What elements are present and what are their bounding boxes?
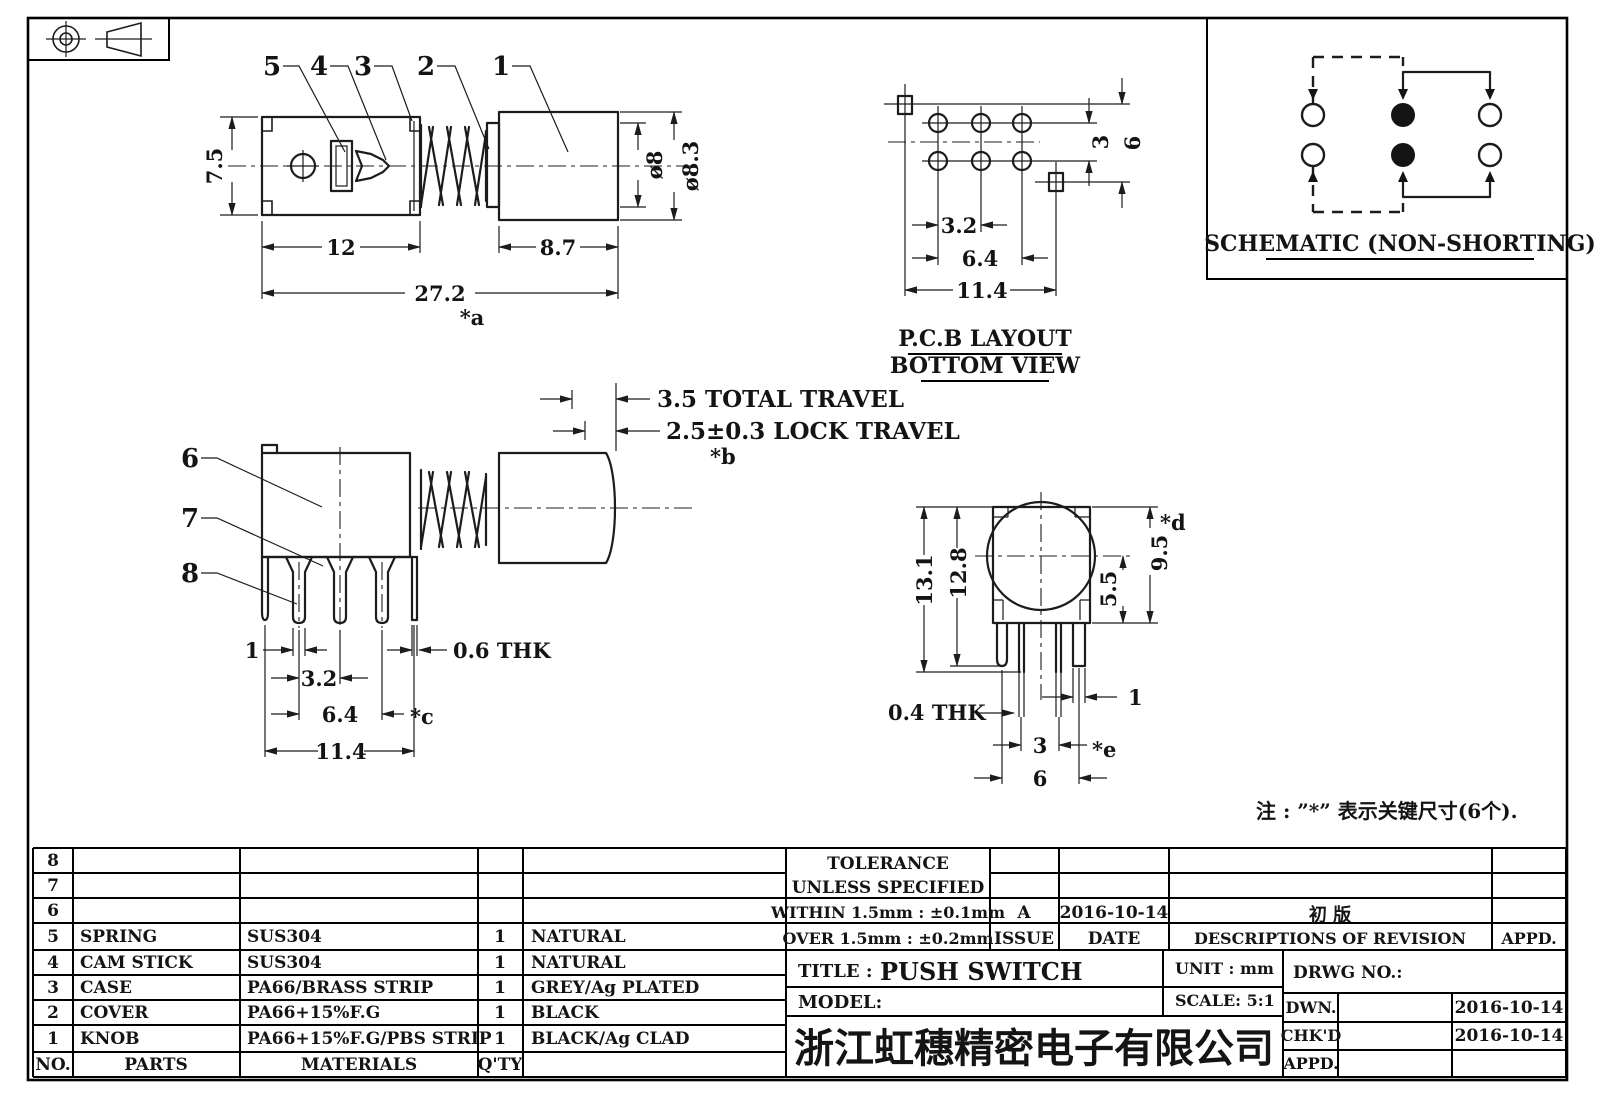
row-material: PA66+15%F.G/PBS STRIP: [247, 1029, 492, 1049]
row-color: GREY/Ag PLATED: [531, 978, 700, 998]
dim-pitch-3-2: 3.2: [941, 213, 978, 238]
row-no: 6: [47, 901, 59, 921]
dim-body-height-12-8: 12.8: [946, 547, 971, 598]
key-dim-a: *a: [460, 305, 485, 330]
revision-description: 初 版: [1309, 904, 1351, 926]
row-no: 2: [47, 1003, 59, 1023]
issue-value: A: [1016, 903, 1031, 923]
header-no: NO.: [35, 1055, 70, 1075]
row-material: PA66/BRASS STRIP: [247, 978, 433, 998]
dim-total-travel: 3.5 TOTAL TRAVEL: [657, 386, 904, 413]
dim-upper-height-9-5: 9.5: [1147, 535, 1172, 572]
row-qty: 1: [494, 1003, 506, 1023]
part-label-8: 8: [181, 559, 199, 589]
appd-column-label: APPD.: [1500, 929, 1556, 948]
row-no: 1: [47, 1029, 59, 1049]
row-part: SPRING: [80, 927, 157, 947]
projection-symbol: [28, 18, 169, 60]
revision-date: 2016-10-14: [1060, 903, 1169, 923]
tolerance-within: WITHIN 1.5mm : ±0.1mm: [770, 903, 1005, 922]
scale-label: SCALE: 5:1: [1175, 991, 1275, 1010]
company-name: 浙江虹穗精密电子有限公司: [794, 1025, 1274, 1072]
key-dim-b: *b: [710, 444, 736, 469]
row-no: 4: [47, 953, 59, 973]
row-color: BLACK/Ag CLAD: [531, 1029, 690, 1049]
part-label-6: 6: [181, 444, 199, 474]
date-label: DATE: [1088, 929, 1141, 949]
row-no: 3: [47, 978, 59, 998]
part-label-7: 7: [181, 504, 199, 534]
row-part: CAM STICK: [80, 953, 194, 973]
key-dimension-note: 注 : ”*” 表示关键尺寸(6个).: [1256, 799, 1518, 823]
row-no: 8: [47, 851, 59, 871]
dim-pitch-3-c: 3: [1033, 733, 1048, 758]
chkd-date: 2016-10-14: [1455, 1026, 1564, 1046]
dim-dia-8-3: ø8.3: [678, 141, 703, 192]
tolerance-subtitle: UNLESS SPECIFIED: [792, 878, 985, 898]
dim-knob-8-7: 8.7: [540, 235, 577, 260]
header-parts: PARTS: [124, 1055, 188, 1075]
key-dim-e: *e: [1092, 737, 1116, 762]
view-front: 13.1 12.8 9.5 *d 5.5 0.4 THK 1 3 *e 6: [888, 492, 1186, 791]
row-no: 7: [47, 876, 59, 896]
key-dim-d: *d: [1160, 510, 1186, 535]
row-qty: 1: [494, 953, 506, 973]
dim-row-gap-3: 3: [1088, 135, 1113, 150]
unit-label: UNIT : mm: [1175, 959, 1274, 978]
dim-span-6-c: 6: [1033, 766, 1048, 791]
drawing-sheet: 5 4 3 2 1 7.5 12 8.7 27.2: [0, 0, 1600, 1100]
pcb-caption-line2: BOTTOM VIEW: [890, 353, 1080, 379]
pcb-layout-view: 3 6 3.2 6.4 11.4 P.C.B LAYOUT BOTTOM VIE…: [884, 78, 1145, 381]
row-no: 5: [47, 927, 59, 947]
dim-pin-width-1: 1: [245, 638, 260, 663]
header-materials: MATERIALS: [301, 1055, 417, 1075]
tolerance-title: TOLERANCE: [827, 854, 949, 874]
dim-dia-8: ø8: [642, 151, 667, 180]
dwn-label: DWN.: [1285, 998, 1336, 1017]
dim-span-6-4-b: 6.4: [322, 702, 359, 727]
issue-label: ISSUE: [994, 929, 1054, 949]
tolerance-over: OVER 1.5mm : ±0.2mm: [783, 929, 994, 948]
dim-total-height-13-1: 13.1: [912, 554, 937, 605]
chkd-label: CHK'D: [1281, 1026, 1342, 1045]
row-part: CASE: [80, 978, 132, 998]
key-dim-c: *c: [410, 704, 434, 729]
dim-thickness-0-6: 0.6 THK: [453, 638, 551, 663]
appd-row-label: APPD.: [1282, 1054, 1338, 1073]
parts-table: 8 7 6 5 SPRING SUS304 1 NATURAL 4 CAM ST…: [35, 851, 699, 1075]
drwg-no-label: DRWG NO.:: [1293, 963, 1403, 983]
row-part: KNOB: [80, 1029, 140, 1049]
row-part: COVER: [80, 1003, 149, 1023]
dim-lower-height-5-5: 5.5: [1096, 571, 1121, 608]
part-label-5: 5: [263, 52, 281, 82]
dim-width-11-4-b: 11.4: [315, 739, 366, 764]
dim-thickness-0-4: 0.4 THK: [888, 700, 986, 725]
row-material: SUS304: [247, 953, 322, 973]
drawing-title: PUSH SWITCH: [880, 957, 1083, 986]
row-color: NATURAL: [531, 927, 626, 947]
pcb-caption-line1: P.C.B LAYOUT: [898, 326, 1072, 352]
revision-label: DESCRIPTIONS OF REVISION: [1194, 929, 1466, 948]
title-label: TITLE :: [798, 961, 873, 982]
row-material: PA66+15%F.G: [247, 1003, 380, 1023]
view-side-assembly: 5 4 3 2 1 7.5 12 8.7 27.2: [202, 52, 703, 330]
part-label-3: 3: [354, 52, 372, 82]
model-label: MODEL:: [798, 992, 882, 1013]
row-qty: 1: [494, 927, 506, 947]
row-material: SUS304: [247, 927, 322, 947]
dim-width-11-4: 11.4: [956, 278, 1007, 303]
dwn-date: 2016-10-14: [1455, 998, 1564, 1018]
part-label-1: 1: [492, 52, 510, 82]
part-label-4: 4: [310, 52, 328, 82]
dim-height-7-5: 7.5: [202, 148, 227, 185]
row-qty: 1: [494, 978, 506, 998]
dim-row-span-6: 6: [1120, 136, 1145, 151]
view-side-pins: 6 7 8 3.5 TOTAL TRAVEL 2.5±0.3 LOCK TRAV…: [181, 383, 960, 764]
dim-pitch-3-2-b: 3.2: [301, 666, 338, 691]
schematic-view: SCHEMATIC (NON-SHORTING): [1204, 18, 1596, 279]
part-label-2: 2: [417, 52, 435, 82]
row-color: NATURAL: [531, 953, 626, 973]
schematic-caption: SCHEMATIC (NON-SHORTING): [1204, 231, 1596, 257]
dim-body-12: 12: [326, 235, 355, 260]
row-qty: 1: [494, 1029, 506, 1049]
dim-total-27-2: 27.2: [414, 281, 465, 306]
dim-span-6-4: 6.4: [962, 246, 999, 271]
dim-lock-travel: 2.5±0.3 LOCK TRAVEL: [666, 418, 960, 445]
title-block: TOLERANCE UNLESS SPECIFIED WITHIN 1.5mm …: [770, 854, 1564, 1073]
dim-pin-width-1-c: 1: [1128, 685, 1143, 710]
row-color: BLACK: [531, 1003, 600, 1023]
header-qty: Q'TY: [478, 1055, 524, 1075]
